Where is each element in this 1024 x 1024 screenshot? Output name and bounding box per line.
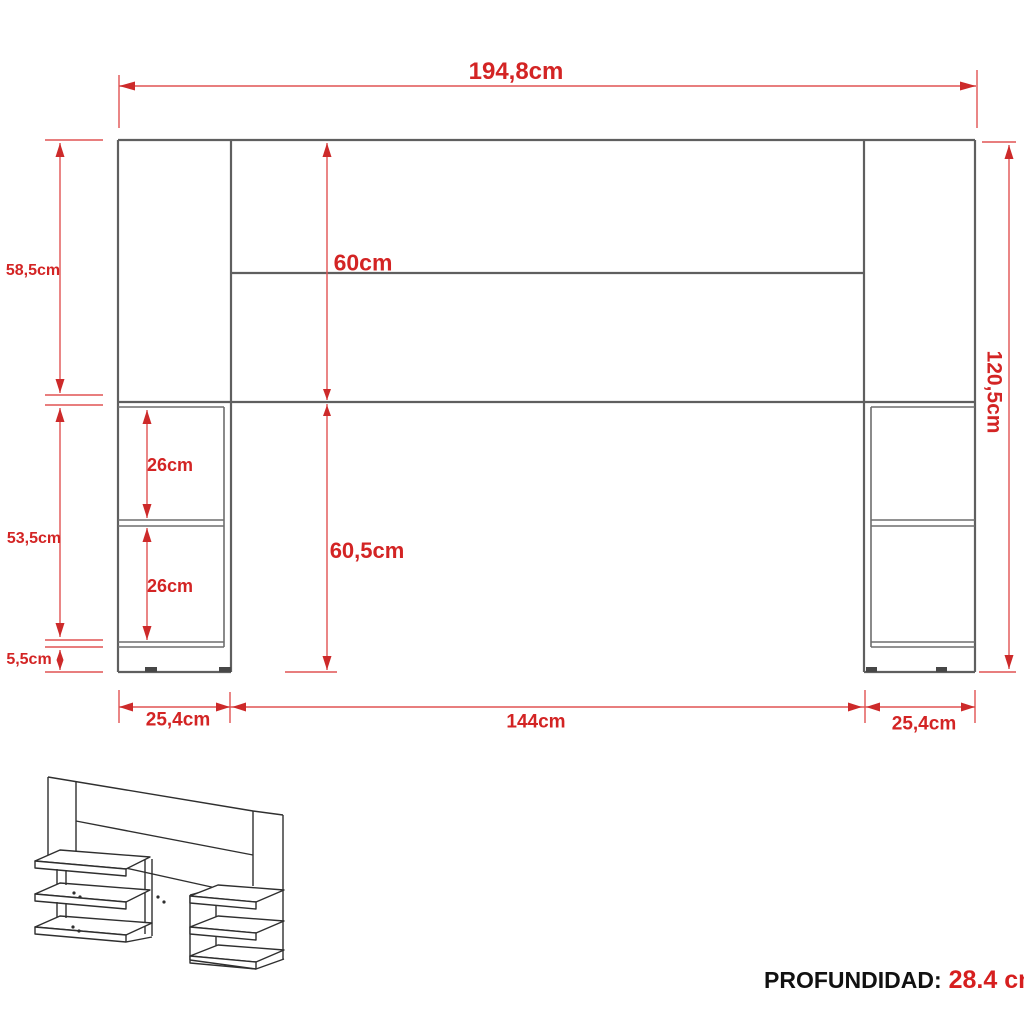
dim-label-lower-section-height: 60,5cm [330,540,405,562]
dimension-arrows [56,82,1014,712]
dim-label-left-middle-height: 53,5cm [7,531,61,547]
depth-label: PROFUNDIDAD: [764,967,942,993]
dim-label-panel-height: 60cm [334,252,393,275]
diagram-linework [0,0,1024,1024]
front-view-outline [118,140,975,672]
front-view-feet [145,667,947,672]
dim-label-shelf-gap-lower: 26cm [147,577,193,595]
isometric-view-sketch [35,777,284,969]
dim-label-left-upper-height: 58,5cm [6,263,60,279]
dim-label-bottom-right-width: 25,4cm [892,715,956,734]
front-view-shelf-lines [118,407,975,647]
dim-label-bottom-left-width: 25,4cm [146,711,210,730]
dim-label-bottom-center-width: 144cm [506,713,565,732]
furniture-dimension-diagram: 194,8cm 58,5cm 53,5cm 5,5cm 60cm 26cm 26… [0,0,1024,1024]
depth-value: 28.4 cm [949,966,1024,994]
dim-label-left-base-height: 5,5cm [6,652,51,668]
depth-note: PROFUNDIDAD:28.4 cm [764,966,1024,995]
dim-label-shelf-gap-upper: 26cm [147,456,193,474]
dim-label-total-height: 120,5cm [984,351,1005,434]
dim-label-total-width: 194,8cm [469,60,564,84]
